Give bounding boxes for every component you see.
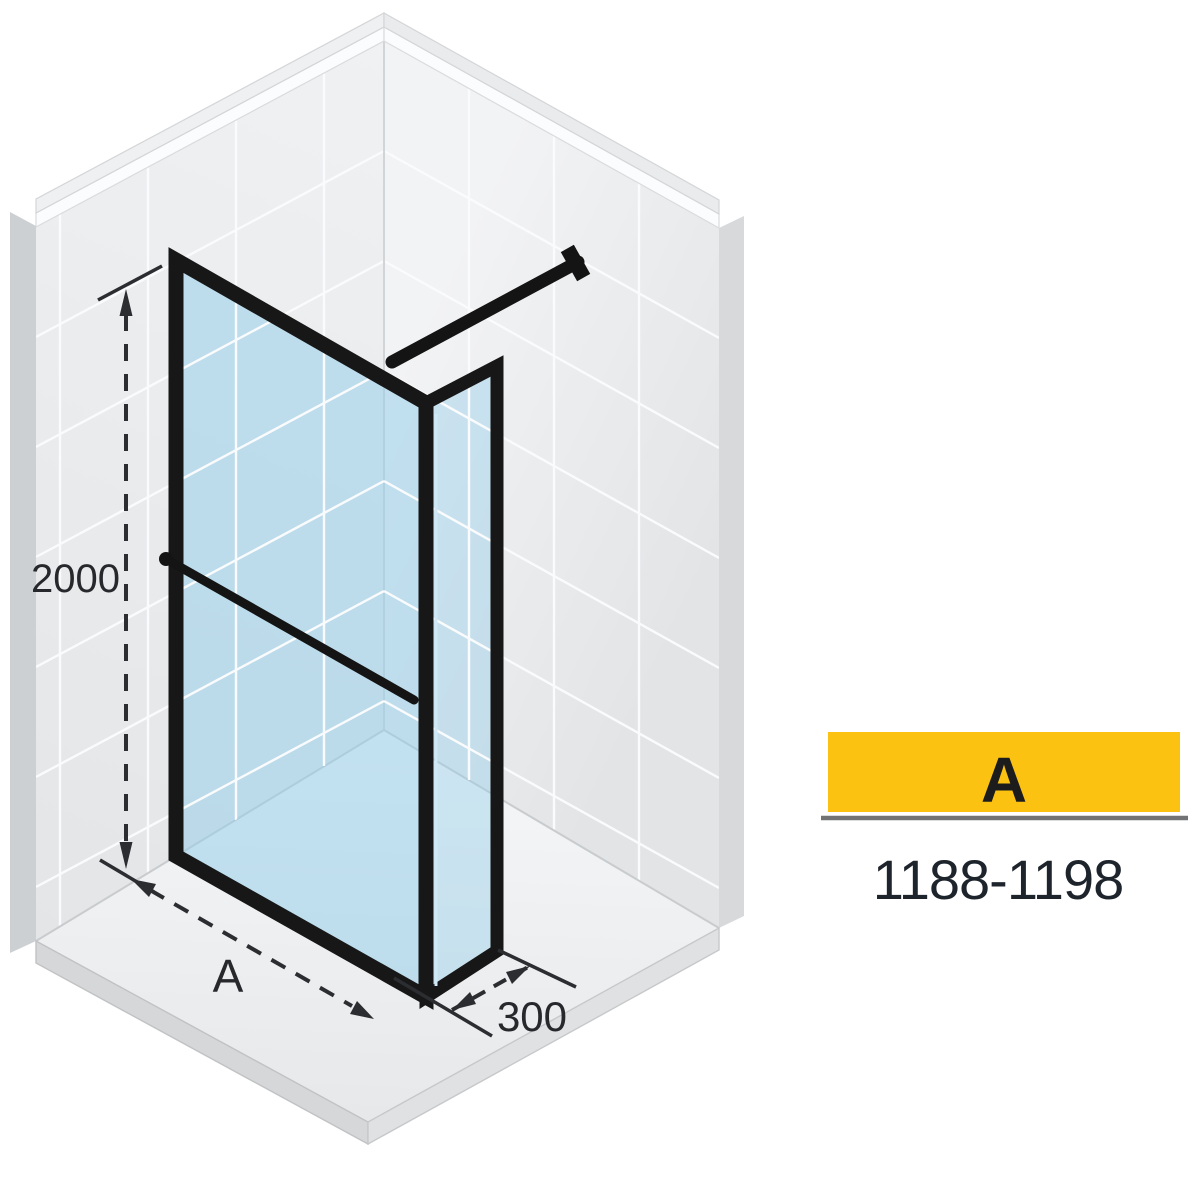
dimension-width-label: A [213,950,244,1002]
dimension-height-label: 2000 [31,557,120,601]
spec-badge: A 1188-1198 [821,732,1188,911]
width-range-label: 1188-1198 [873,848,1124,911]
dimension-depth-label: 300 [497,993,567,1040]
shower-enclosure-diagram: 2000 A 300 A 1188-1198 [0,0,1200,1200]
diagram-canvas: 2000 A 300 A 1188-1198 [0,0,1200,1200]
badge-label: A [981,744,1027,816]
right-wall-edge [719,216,744,928]
stabilizer-wall-flange [571,255,580,271]
